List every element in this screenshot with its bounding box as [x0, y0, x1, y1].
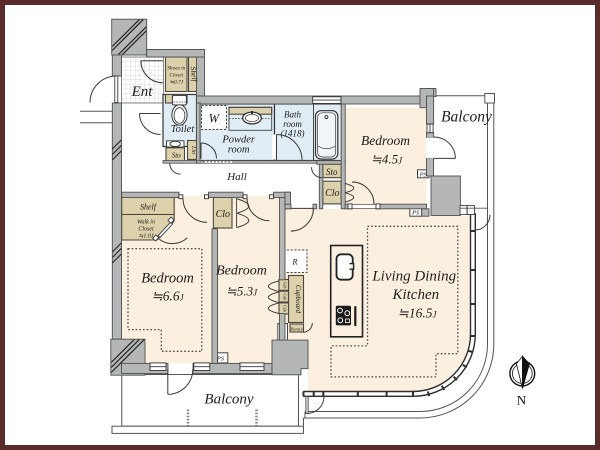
- svg-text:Cab: Cab: [283, 293, 288, 300]
- svg-text:Closet: Closet: [138, 227, 154, 233]
- svg-text:Shelf: Shelf: [140, 203, 158, 212]
- svg-text:Bedroom: Bedroom: [361, 133, 410, 148]
- svg-text:Sto: Sto: [326, 167, 338, 177]
- svg-text:Bath: Bath: [284, 110, 301, 120]
- svg-text:Sto: Sto: [172, 152, 181, 160]
- svg-text:Walk in: Walk in: [137, 220, 155, 226]
- svg-text:N: N: [517, 393, 527, 408]
- svg-text:Cupboard: Cupboard: [294, 285, 302, 314]
- svg-text:W: W: [209, 112, 221, 126]
- svg-text:PS: PS: [411, 210, 420, 217]
- svg-text:Lin: Lin: [190, 145, 196, 154]
- svg-text:Toilet: Toilet: [171, 124, 196, 135]
- svg-text:Kitchen: Kitchen: [391, 287, 439, 303]
- svg-text:Clo: Clo: [216, 209, 230, 220]
- svg-text:Living Dining: Living Dining: [371, 269, 456, 285]
- svg-text:Pantry: Pantry: [290, 327, 303, 332]
- svg-text:Cab: Cab: [283, 305, 288, 312]
- svg-text:≒0.7J: ≒0.7J: [169, 80, 183, 86]
- svg-text:Ent: Ent: [131, 84, 154, 100]
- svg-text:R: R: [291, 257, 298, 267]
- svg-text:Balcony: Balcony: [204, 392, 253, 408]
- svg-text:Shoes in: Shoes in: [167, 66, 185, 72]
- svg-text:Closet: Closet: [169, 73, 183, 79]
- svg-text:Clo: Clo: [325, 188, 339, 199]
- svg-text:PS: PS: [419, 172, 428, 179]
- svg-text:PS: PS: [216, 356, 225, 363]
- svg-text:Bedroom: Bedroom: [141, 271, 194, 287]
- svg-text:(1418): (1418): [281, 129, 305, 139]
- svg-text:room: room: [283, 119, 302, 129]
- svg-text:room: room: [228, 145, 250, 156]
- svg-text:Hall: Hall: [226, 171, 247, 183]
- svg-text:Shelf: Shelf: [189, 66, 200, 83]
- svg-text:≒16.5J: ≒16.5J: [398, 306, 438, 321]
- svg-text:Balcony: Balcony: [441, 109, 492, 126]
- svg-text:≒1.0J: ≒1.0J: [138, 234, 154, 240]
- svg-text:Bedroom: Bedroom: [216, 264, 267, 279]
- svg-text:Cab: Cab: [283, 282, 288, 289]
